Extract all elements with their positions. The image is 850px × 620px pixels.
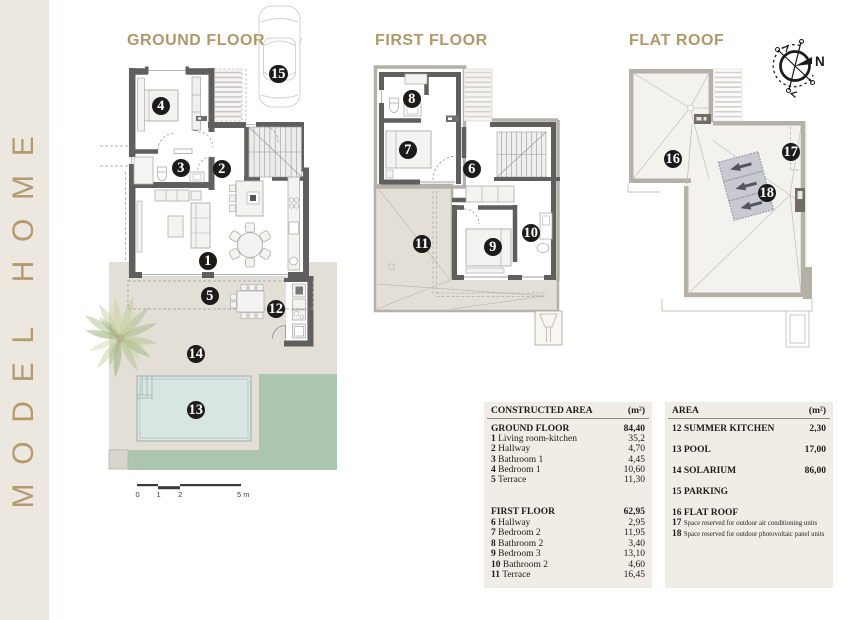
svg-text:5 m: 5 m — [237, 490, 250, 499]
svg-text:2: 2 — [178, 490, 182, 499]
svg-text:N: N — [815, 54, 825, 69]
svg-text:1: 1 — [157, 490, 161, 499]
svg-text:0: 0 — [136, 490, 140, 499]
